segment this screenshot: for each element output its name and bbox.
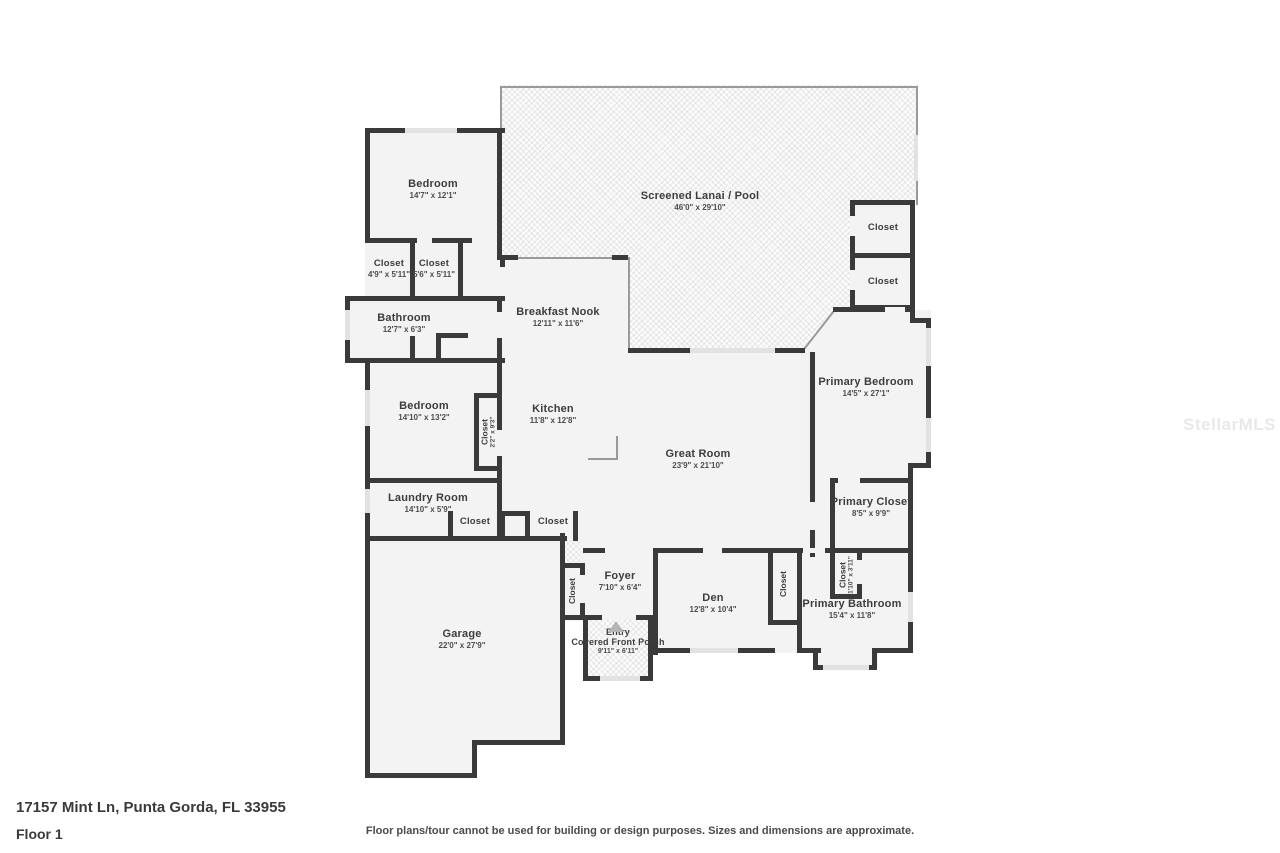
room-label-closet-left-a: Closet 4'9" x 5'11" (368, 258, 410, 279)
room-dims: 46'0" x 29'10" (641, 203, 760, 212)
room-name: Closet (778, 571, 788, 597)
room-label-foyer: Foyer 7'10" x 6'4" (599, 570, 642, 592)
room-label-closet-hall-a: Closet (460, 516, 490, 527)
room-dims: 5'6" x 5'11" (413, 270, 455, 279)
room-label-bathroom: Bathroom 12'7" x 6'3" (377, 312, 431, 334)
room-dims: 4'9" x 5'11" (368, 270, 410, 279)
room-name: Closet (567, 578, 577, 604)
room-name: Garage (439, 628, 486, 640)
stellar-mls-watermark: StellarMLS (1183, 415, 1276, 435)
lanai-diagonal-edge (801, 311, 834, 353)
room-dims: 14'10" x 5'9" (388, 505, 468, 514)
room-name: Bedroom (408, 178, 458, 190)
room-name: Closet (868, 222, 898, 233)
room-dims: 14'5" x 27'1" (818, 389, 913, 398)
room-name: Closet (538, 516, 568, 527)
room-name: Primary Bathroom (802, 598, 901, 610)
room-name: Closet (413, 258, 455, 269)
entry-arrow-icon (608, 621, 624, 632)
room-label-breakfast-nook: Breakfast Nook 12'11" x 11'6" (516, 306, 600, 328)
disclaimer-text: Floor plans/tour cannot be used for buil… (0, 825, 1280, 837)
room-label-kitchen: Kitchen 11'8" x 12'8" (530, 403, 577, 425)
room-label-great-room: Great Room 23'9" x 21'10" (666, 448, 731, 470)
room-dims: 7'10" x 6'4" (599, 583, 642, 592)
room-label-closet-left-b: Closet 5'6" x 5'11" (413, 258, 455, 279)
room-name: Den (690, 592, 737, 604)
floor-plan: Bedroom 14'7" x 12'1" Screened Lanai / P… (0, 0, 1280, 853)
room-label-primary-bedroom: Primary Bedroom 14'5" x 27'1" (818, 376, 913, 398)
room-name: Closet (460, 516, 490, 527)
room-name: Breakfast Nook (516, 306, 600, 318)
room-label-primary-bathroom: Primary Bathroom 15'4" x 11'8" (802, 598, 901, 620)
room-name: Bathroom (377, 312, 431, 324)
room-label-closet-hall-bottom: Closet (868, 276, 898, 287)
property-address: 17157 Mint Ln, Punta Gorda, FL 33955 (16, 799, 286, 816)
room-label-closet-hall-top: Closet (868, 222, 898, 233)
room-name: Kitchen (530, 403, 577, 415)
room-dims: 22'0" x 27'9" (439, 641, 486, 650)
room-name: Bedroom (398, 400, 449, 412)
room-name: Foyer (599, 570, 642, 582)
room-name: Primary Closet (831, 496, 911, 508)
room-dims: 2'2" x 9'3" (490, 417, 497, 448)
room-dims: 12'7" x 6'3" (377, 325, 431, 334)
room-label-bedroom-top: Bedroom 14'7" x 12'1" (408, 178, 458, 200)
room-label-primary-closet: Primary Closet 8'5" x 9'9" (831, 496, 911, 518)
room-name: Closet (480, 417, 490, 448)
room-label-laundry: Laundry Room 14'10" x 5'9" (388, 492, 468, 514)
room-label-closet-den: Closet (778, 571, 788, 597)
room-name: Screened Lanai / Pool (641, 190, 760, 202)
room-label-garage: Garage 22'0" x 27'9" (439, 628, 486, 650)
room-dims: 12'11" x 11'6" (516, 319, 600, 328)
walls-windows-layer (0, 0, 1280, 853)
room-dims: 12'8" x 10'4" (690, 605, 737, 614)
room-dims: 15'4" x 11'8" (802, 611, 901, 620)
room-name: Closet (868, 276, 898, 287)
room-name: Covered Front Porch (571, 637, 664, 647)
room-name: Closet (838, 556, 848, 594)
room-label-den: Den 12'8" x 10'4" (690, 592, 737, 614)
room-label-closet-bedroom-mid: Closet 2'2" x 9'3" (480, 417, 497, 448)
room-name: Great Room (666, 448, 731, 460)
room-dims: 8'5" x 9'9" (831, 509, 911, 518)
room-label-closet-hall-b: Closet (538, 516, 568, 527)
room-dims: 14'10" x 13'2" (398, 413, 449, 422)
room-label-bedroom-mid: Bedroom 14'10" x 13'2" (398, 400, 449, 422)
room-name: Closet (368, 258, 410, 269)
room-label-closet-foyer: Closet (567, 578, 577, 604)
room-dims: 9'11" x 6'11" (571, 648, 664, 655)
room-name: Laundry Room (388, 492, 468, 504)
room-dims: 11'8" x 12'8" (530, 416, 577, 425)
room-label-closet-bath: Closet 1'10" x 3'11" (838, 556, 855, 594)
room-dims: 14'7" x 12'1" (408, 191, 458, 200)
room-name: Primary Bedroom (818, 376, 913, 388)
room-dims: 1'10" x 3'11" (848, 556, 855, 594)
room-dims: 23'9" x 21'10" (666, 461, 731, 470)
room-label-lanai: Screened Lanai / Pool 46'0" x 29'10" (641, 190, 760, 212)
